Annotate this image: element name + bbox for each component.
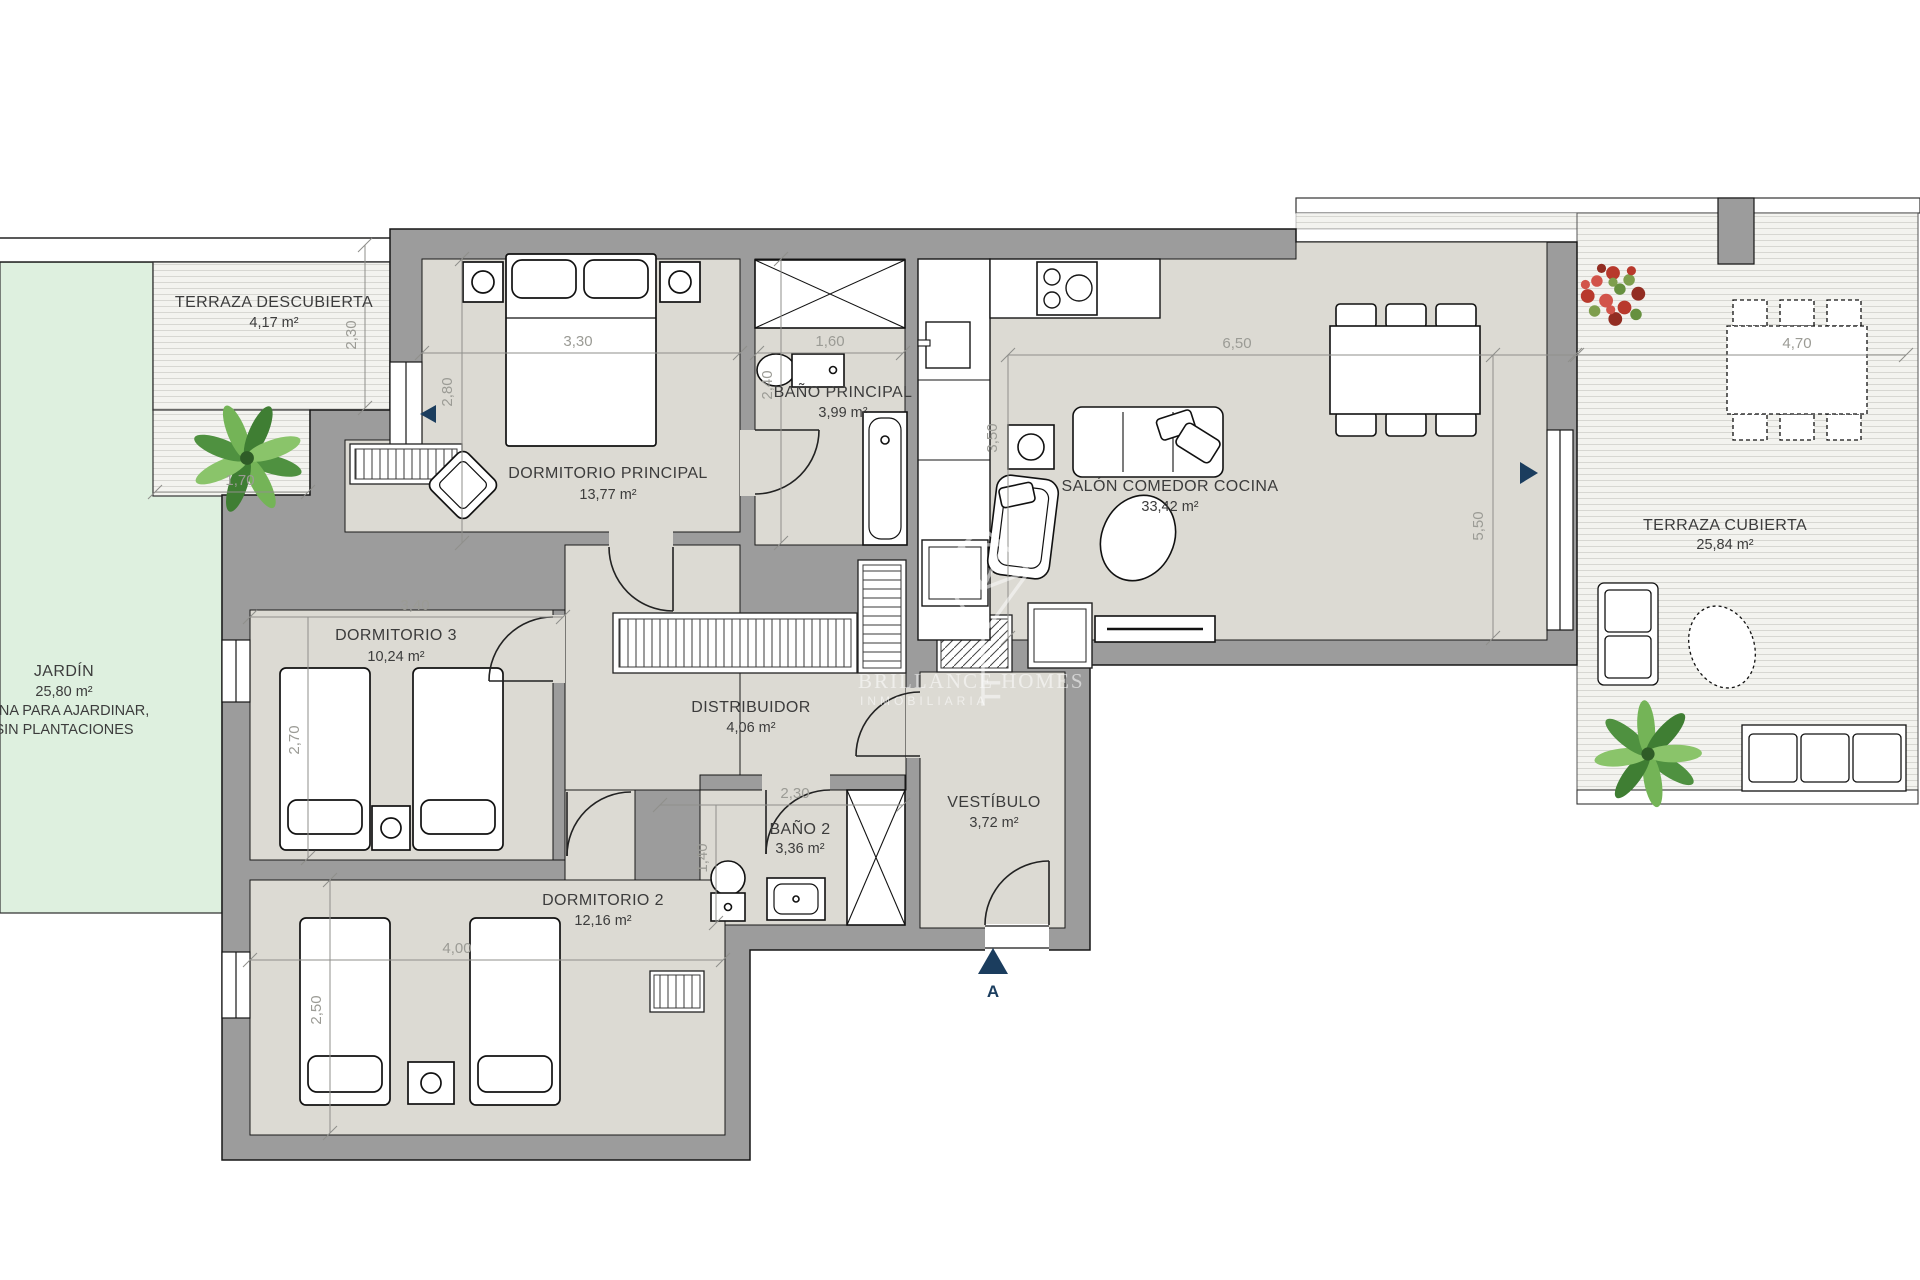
kitchen-sink-icon — [918, 322, 970, 368]
dim-text: 1,40 — [694, 843, 711, 872]
dim-text: 2,30 — [343, 320, 360, 349]
double-bed-icon — [506, 254, 656, 446]
bathtub-icon — [863, 412, 907, 545]
dim-text: 4,70 — [1782, 335, 1811, 352]
cabinet-vestibulo — [1028, 603, 1092, 668]
watermark-name: BRILLANCE HOMES — [858, 669, 1085, 693]
room-area-bano-2: 3,36 m² — [775, 841, 824, 857]
window-dormitorio-3 — [222, 640, 250, 702]
floor-plan-svg: 2,30 1,70 3,30 2,80 1,60 2,40 6,50 3,50 … — [0, 0, 1920, 1280]
room-area-jardin: 25,80 m² — [35, 684, 92, 700]
dim-text: 3,30 — [563, 333, 592, 350]
single-bed-icon — [470, 918, 560, 1105]
outdoor-bench-icon — [1742, 725, 1906, 791]
nightstand-icon — [372, 806, 410, 850]
window-salon-terrace — [1547, 430, 1573, 630]
dining-table-icon — [1330, 304, 1480, 436]
room-label-dormitorio-principal: DORMITORIO PRINCIPAL — [508, 465, 707, 482]
section-label: A — [987, 982, 999, 1001]
room-area-bano-principal: 3,99 m² — [818, 405, 867, 421]
closet-linen — [858, 560, 906, 673]
section-marker-a: A — [978, 948, 1008, 1001]
room-area-dormitorio-3: 10,24 m² — [367, 649, 424, 665]
dim-text: 3,50 — [984, 423, 1001, 452]
floor-distribuidor-c — [565, 790, 635, 880]
dim-text: 4,00 — [442, 940, 471, 957]
dim-text: 3,40 — [400, 597, 429, 614]
room-label-salon: SALÓN COMEDOR COCINA — [1062, 476, 1279, 495]
bathroom-sink-icon — [767, 878, 825, 920]
dim-text: 1,60 — [815, 333, 844, 350]
dim-text: 1,70 — [225, 472, 254, 489]
single-bed-icon — [413, 668, 503, 850]
entrance-opening — [985, 924, 1049, 951]
room-area-dormitorio-principal: 13,77 m² — [579, 487, 636, 503]
dim-text: 2,30 — [780, 785, 809, 802]
dim-text: 2,50 — [308, 995, 325, 1024]
dim-text: 5,50 — [1470, 511, 1487, 540]
room-label-terraza-descubierta: TERRAZA DESCUBIERTA — [175, 294, 373, 311]
nightstand-icon — [660, 262, 700, 302]
room-label-vestibulo: VESTÍBULO — [947, 792, 1040, 811]
closet-distribuidor — [613, 613, 857, 673]
section-arrow-icon — [978, 948, 1008, 974]
room-note-jardin: SIN PLANTACIONES — [0, 722, 134, 738]
window-dormitorio-2 — [222, 952, 250, 1018]
room-label-terraza-cubierta: TERRAZA CUBIERTA — [1643, 517, 1807, 534]
room-label-bano-2: BAÑO 2 — [769, 818, 830, 838]
room-area-terraza-descubierta: 4,17 m² — [249, 315, 298, 331]
dim-text: 2,80 — [439, 377, 456, 406]
tv-bench-icon — [1095, 616, 1215, 642]
single-bed-icon — [280, 668, 370, 850]
cooktop-icon — [1037, 262, 1097, 315]
room-area-terraza-cubierta: 25,84 m² — [1696, 537, 1753, 553]
room-label-bano-principal: BAÑO PRINCIPAL — [774, 381, 913, 401]
boundary-wall-top — [0, 238, 390, 262]
nightstand-icon — [463, 262, 503, 302]
floor-plan-page: 2,30 1,70 3,30 2,80 1,60 2,40 6,50 3,50 … — [0, 0, 1920, 1280]
outdoor-dining-table-icon — [1727, 300, 1867, 440]
room-label-distribuidor: DISTRIBUIDOR — [691, 699, 810, 716]
room-area-salon: 33,42 m² — [1141, 499, 1198, 515]
room-area-vestibulo: 3,72 m² — [969, 815, 1018, 831]
shower-icon — [847, 790, 905, 925]
watermark-subtitle: INMOBILIARIA — [860, 694, 989, 708]
dim-text: 6,50 — [1222, 335, 1251, 352]
room-area-dormitorio-2: 12,16 m² — [574, 913, 631, 929]
room-area-distribuidor: 4,06 m² — [726, 720, 775, 736]
nightstand-icon — [408, 1062, 454, 1104]
closet-dormitorio-2 — [650, 971, 704, 1012]
window-dormitorio-principal — [390, 362, 422, 450]
room-label-dormitorio-2: DORMITORIO 2 — [542, 892, 664, 909]
room-note-jardin: ZONA PARA AJARDINAR, — [0, 703, 149, 719]
dim-text: 2,70 — [286, 725, 303, 754]
side-table-icon — [1008, 425, 1054, 469]
room-label-dormitorio-3: DORMITORIO 3 — [335, 627, 457, 644]
outdoor-sofa-icon — [1598, 583, 1658, 685]
room-label-jardin: JARDÍN — [34, 661, 94, 680]
shower-icon — [755, 260, 905, 328]
sofa-icon — [1073, 407, 1223, 477]
